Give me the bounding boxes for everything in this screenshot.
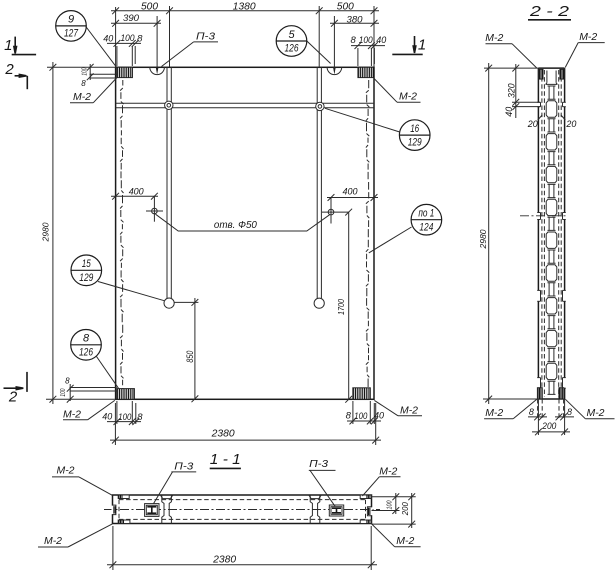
svg-text:8: 8 [529,407,534,417]
svg-text:400: 400 [343,187,359,198]
svg-text:500: 500 [141,1,158,12]
svg-text:М-2: М-2 [485,32,503,44]
svg-text:5: 5 [288,29,295,41]
svg-text:129: 129 [408,137,422,149]
svg-text:124: 124 [419,221,433,233]
svg-text:8: 8 [83,333,90,345]
svg-text:8: 8 [137,33,143,44]
svg-text:М-2: М-2 [73,91,91,103]
svg-text:2980: 2980 [41,222,51,242]
svg-text:100: 100 [58,389,67,397]
svg-text:1 - 1: 1 - 1 [210,452,241,468]
svg-text:2 - 2: 2 - 2 [529,4,569,20]
svg-text:8: 8 [567,407,572,417]
svg-text:1700: 1700 [336,299,346,315]
svg-text:1380: 1380 [233,1,256,12]
svg-text:850: 850 [185,351,195,363]
svg-text:М-2: М-2 [400,404,418,416]
svg-text:9: 9 [68,14,74,26]
svg-text:127: 127 [64,28,79,40]
svg-text:200: 200 [401,502,410,517]
svg-text:М-2: М-2 [396,535,414,547]
svg-text:М-2: М-2 [57,464,75,476]
svg-text:М-2: М-2 [579,31,597,43]
svg-text:8: 8 [81,79,86,88]
svg-text:20: 20 [565,119,577,130]
svg-text:2380: 2380 [212,554,236,565]
svg-text:100: 100 [385,500,394,510]
svg-text:126: 126 [79,346,94,358]
svg-text:8: 8 [351,35,357,46]
svg-text:М-2: М-2 [63,408,81,420]
svg-text:М-2: М-2 [587,407,605,419]
svg-text:320: 320 [507,83,518,98]
svg-text:2: 2 [4,61,14,78]
svg-text:500: 500 [337,1,354,12]
svg-text:100: 100 [354,411,368,422]
svg-text:100: 100 [118,412,132,423]
svg-text:М-2: М-2 [379,465,397,477]
svg-text:129: 129 [79,272,93,284]
svg-text:8: 8 [346,411,352,422]
svg-text:200: 200 [541,421,557,432]
svg-text:отв. Ф50: отв. Ф50 [214,219,257,231]
svg-text:100: 100 [80,68,89,76]
svg-text:100: 100 [359,35,374,46]
svg-text:126: 126 [285,43,300,55]
svg-text:П-3: П-3 [309,458,328,470]
svg-text:2380: 2380 [211,429,235,440]
svg-text:8: 8 [137,412,143,423]
svg-text:15: 15 [82,258,92,270]
svg-text:20: 20 [527,119,539,130]
svg-text:П-3: П-3 [174,460,193,472]
svg-text:8: 8 [65,376,70,385]
svg-text:2: 2 [8,389,18,406]
svg-text:40: 40 [504,106,515,117]
svg-text:М-2: М-2 [399,91,417,103]
svg-text:16: 16 [410,123,420,135]
svg-text:100: 100 [121,33,136,44]
svg-text:390: 390 [123,13,140,23]
svg-text:П-3: П-3 [196,30,215,42]
svg-text:1: 1 [4,37,12,54]
svg-text:380: 380 [347,15,364,25]
svg-text:40: 40 [103,33,114,44]
svg-text:М-2: М-2 [44,535,62,547]
svg-text:400: 400 [129,186,145,197]
svg-text:1: 1 [418,37,426,54]
svg-text:40: 40 [376,35,387,46]
svg-text:по 1: по 1 [418,208,434,220]
svg-text:М-2: М-2 [485,407,503,419]
svg-text:40: 40 [102,412,113,423]
svg-text:2980: 2980 [478,229,488,249]
